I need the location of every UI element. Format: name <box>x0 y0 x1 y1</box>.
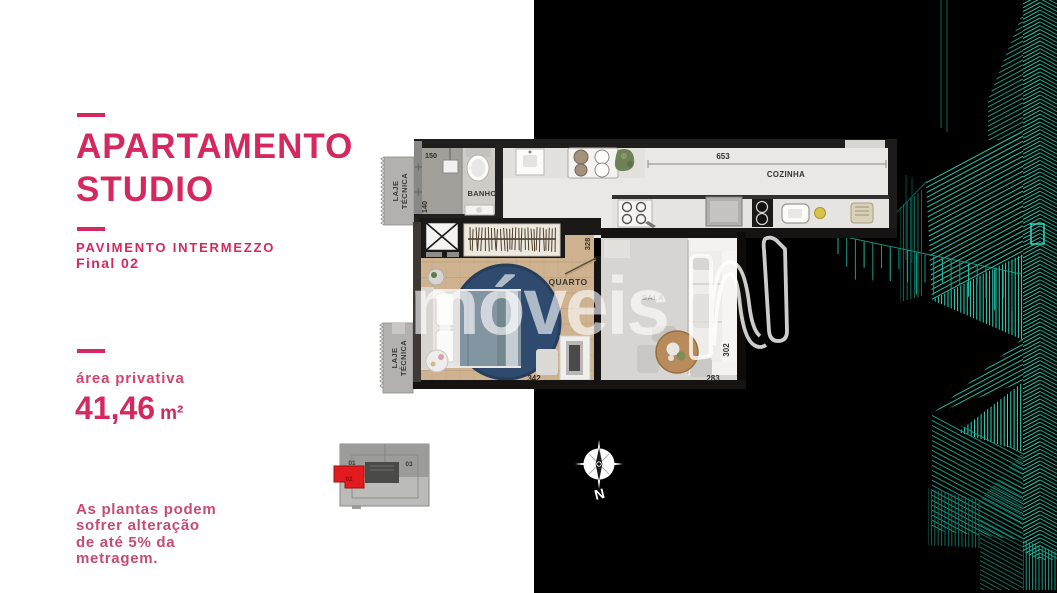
svg-text:TÉCNICA: TÉCNICA <box>399 340 408 376</box>
svg-text:móveis: móveis <box>410 261 668 352</box>
svg-text:COZINHA: COZINHA <box>767 170 805 179</box>
svg-text:328: 328 <box>583 238 592 251</box>
svg-text:150: 150 <box>425 151 437 160</box>
svg-text:TÉCNICA: TÉCNICA <box>400 173 409 209</box>
svg-text:LAJE: LAJE <box>390 348 399 369</box>
svg-text:03: 03 <box>405 461 413 468</box>
svg-text:140: 140 <box>420 201 429 213</box>
svg-text:01: 01 <box>348 460 356 467</box>
svg-text:BANHO: BANHO <box>468 189 497 198</box>
svg-text:LAJE: LAJE <box>391 181 400 202</box>
svg-text:N: N <box>593 485 607 503</box>
svg-text:283: 283 <box>706 374 720 383</box>
svg-text:342: 342 <box>527 374 541 383</box>
svg-text:653: 653 <box>716 152 730 161</box>
svg-text:02: 02 <box>345 476 353 483</box>
svg-text:302: 302 <box>722 343 731 357</box>
